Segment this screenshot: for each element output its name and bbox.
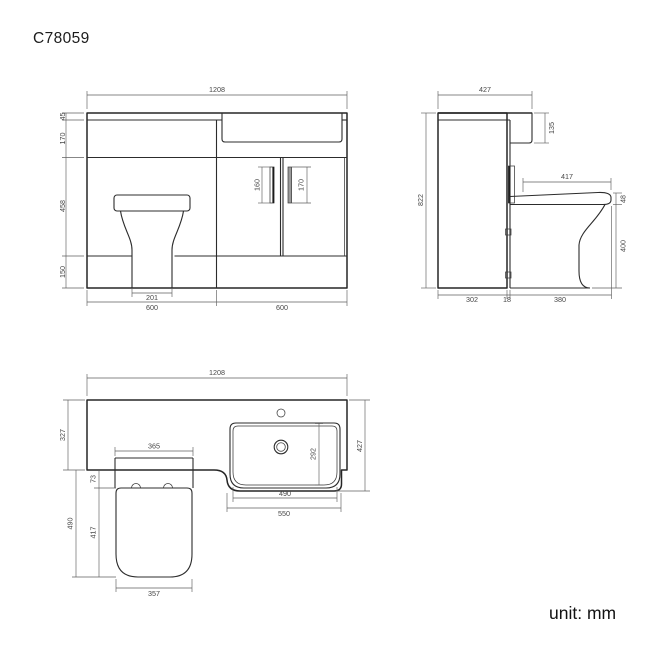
dim-plan-worktop-depth: 327 bbox=[58, 400, 85, 470]
side-cabinet-outline bbox=[438, 113, 507, 288]
plan-cistern bbox=[115, 458, 193, 488]
dim-label: 365 bbox=[148, 442, 160, 451]
dim-plan-overall-width: 1208 bbox=[87, 368, 347, 396]
dim-label: 18 bbox=[503, 295, 511, 304]
front-handle-right bbox=[288, 167, 292, 203]
side-view: 427 135 822 417 48 bbox=[416, 85, 628, 304]
dim-label: 357 bbox=[148, 589, 160, 598]
dim-front-overall-width: 1208 bbox=[87, 85, 347, 109]
side-basin-bowl bbox=[510, 113, 532, 143]
dim-label: 427 bbox=[479, 85, 491, 94]
dim-label: 427 bbox=[355, 440, 364, 452]
dim-label: 417 bbox=[89, 527, 98, 539]
dim-front-handle-left: 160 bbox=[253, 167, 271, 203]
dim-front-left-column: 45 170 458 150 bbox=[58, 113, 84, 289]
dim-label: 1208 bbox=[209, 368, 225, 377]
front-toilet bbox=[114, 195, 190, 288]
dim-label: 1208 bbox=[209, 85, 225, 94]
dim-label: 600 bbox=[146, 303, 158, 312]
dim-label: 490 bbox=[279, 489, 291, 498]
dim-label: 302 bbox=[466, 295, 478, 304]
plan-basin-outer bbox=[230, 423, 340, 488]
dim-side-seat-length: 417 bbox=[523, 172, 611, 192]
dim-side-seat-thickness-pan-height: 48 400 bbox=[592, 193, 628, 288]
front-toilet-seat bbox=[114, 195, 190, 211]
dim-side-overall-height: 822 bbox=[416, 113, 436, 288]
plan-counter-outline bbox=[87, 400, 347, 491]
plan-waste-outer bbox=[274, 440, 288, 454]
dim-label: 600 bbox=[276, 303, 288, 312]
dim-label: 327 bbox=[58, 429, 67, 441]
dim-front-handle-right: 170 bbox=[292, 167, 311, 203]
dim-label: 822 bbox=[416, 194, 425, 206]
dim-label: 201 bbox=[146, 293, 158, 302]
unit-label: unit: mm bbox=[549, 603, 616, 624]
dim-label: 48 bbox=[619, 195, 628, 203]
dim-label: 380 bbox=[554, 295, 566, 304]
dim-label: 73 bbox=[89, 475, 98, 483]
dim-label: 417 bbox=[561, 172, 573, 181]
dim-plan-seat-front-width: 357 bbox=[116, 579, 192, 598]
dim-label: 135 bbox=[547, 122, 556, 134]
drawing-svg: 1208 45 170 458 150 160 bbox=[0, 0, 650, 650]
dim-front-pan-base: 201 bbox=[132, 288, 172, 302]
side-toilet-seat bbox=[510, 192, 611, 204]
front-view: 1208 45 170 458 150 160 bbox=[58, 85, 347, 312]
plan-tap-hole bbox=[277, 409, 285, 417]
plan-waste-inner bbox=[277, 443, 286, 452]
dim-side-overall-depth: 427 bbox=[438, 85, 532, 109]
dim-plan-basin-inner-depth: 292 bbox=[309, 424, 324, 486]
plan-seat-hinge-left bbox=[132, 484, 141, 489]
dim-label: 170 bbox=[297, 179, 306, 191]
technical-drawing-page: C78059 bbox=[0, 0, 650, 650]
dim-side-basin-depth: 135 bbox=[534, 113, 556, 143]
dim-label: 400 bbox=[619, 240, 628, 252]
side-toilet-pan bbox=[579, 205, 605, 289]
dim-label: 170 bbox=[58, 133, 67, 145]
plan-view: 1208 327 427 292 490 bbox=[58, 368, 370, 598]
dim-label: 160 bbox=[253, 179, 262, 191]
dim-plan-left-column: 73 417 490 bbox=[66, 470, 117, 577]
dim-label: 550 bbox=[278, 509, 290, 518]
dim-label: 150 bbox=[58, 266, 67, 278]
dim-side-bottom: 302 18 380 bbox=[438, 206, 612, 304]
plan-basin-inner bbox=[233, 426, 337, 485]
front-handle-left bbox=[270, 167, 274, 203]
front-basin-bowl bbox=[222, 113, 342, 142]
plan-seat-hinge-right bbox=[164, 484, 173, 489]
plan-toilet-seat bbox=[116, 488, 192, 577]
dim-front-sections: 600 600 bbox=[87, 290, 347, 312]
dim-plan-cistern-width: 365 bbox=[115, 442, 193, 457]
dim-label: 490 bbox=[66, 518, 75, 530]
dim-label: 45 bbox=[58, 113, 67, 121]
dim-label: 292 bbox=[309, 448, 318, 460]
dim-label: 458 bbox=[58, 200, 67, 212]
